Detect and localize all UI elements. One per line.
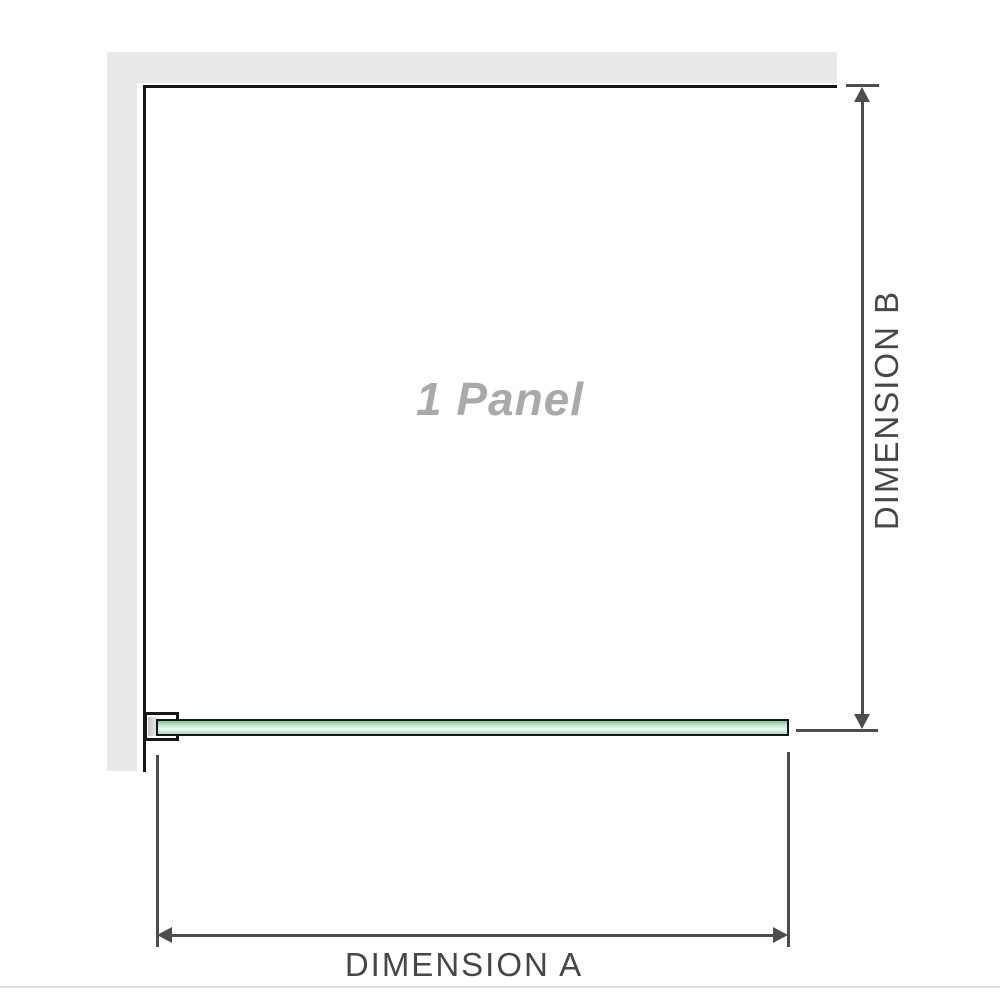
dimension-b-bottom-tick <box>796 729 878 732</box>
dimension-a-left-extension-line <box>156 755 159 947</box>
panel-count-label: 1 Panel <box>416 372 584 426</box>
dimension-b-label: DIMENSION B <box>868 290 906 530</box>
wall-left-strip <box>107 52 137 771</box>
wall-top-strip <box>107 52 837 83</box>
glass-panel-bar <box>156 719 789 736</box>
panel-dimension-diagram: 1 Panel DIMENSION B DIMENSION A <box>0 0 1000 1000</box>
arrow-right-icon <box>773 927 788 943</box>
panel-outline-left-edge <box>143 85 146 772</box>
dimension-a-label: DIMENSION A <box>345 946 583 984</box>
arrow-down-icon <box>854 714 870 729</box>
arrow-up-icon <box>854 87 870 102</box>
dimension-a-line <box>165 934 780 937</box>
dimension-b-line <box>861 92 864 722</box>
page-bottom-divider <box>0 986 1000 988</box>
arrow-left-icon <box>157 927 172 943</box>
dimension-a-right-extension-line <box>787 752 790 947</box>
panel-outline-top-edge <box>143 85 837 88</box>
